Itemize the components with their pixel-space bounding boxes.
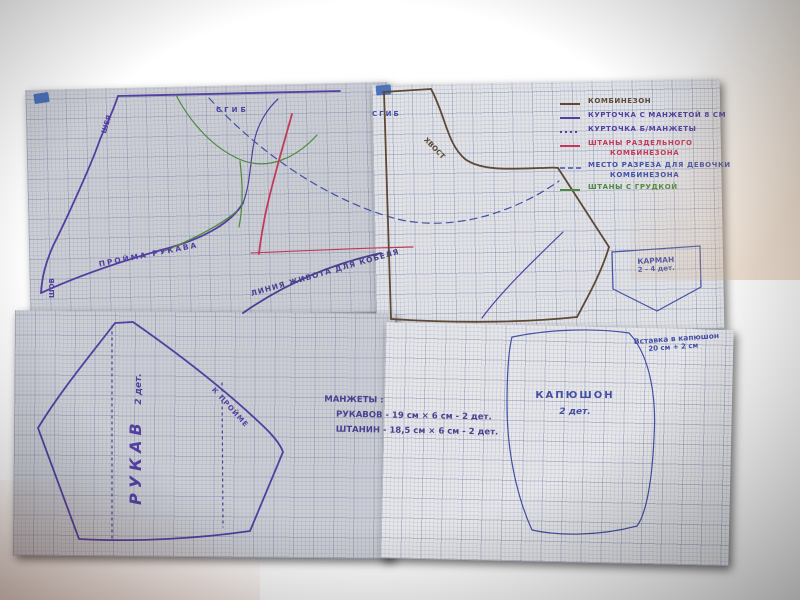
sleeve-quantity: 2 дет. — [134, 373, 144, 404]
legend-label: КУРТОЧКА Б/МАНЖЕТЫ — [588, 124, 697, 134]
legend-label: ШТАНЫ С ГРУДКОЙ — [588, 182, 678, 192]
blue-tape-piece — [376, 84, 392, 95]
legend-line-sample — [558, 110, 588, 122]
legend-item: МЕСТО РАЗРЕЗА ДЛЯ ДЕВОЧКИ КОМБИНЕЗОНА — [558, 160, 738, 180]
legend-label: КОМБИНЕЗОН — [588, 96, 651, 106]
legend-line-sample — [558, 124, 588, 136]
legend-label-line2: КОМБИНЕЗОНА — [610, 170, 731, 180]
legend-item: КУРТОЧКА С МАНЖЕТОЙ 8 СМ — [558, 110, 738, 122]
sleeve-title: РУКАВ — [126, 418, 145, 505]
legend-label: МЕСТО РАЗРЕЗА ДЛЯ ДЕВОЧКИ — [588, 160, 731, 170]
cuffs-pants-row: ШТАНИН - 18,5 см × 6 см - 2 дет. — [336, 423, 499, 441]
legend-item: ШТАНЫ С ГРУДКОЙ — [558, 182, 738, 194]
legend-line-sample — [558, 138, 588, 150]
hood-title: КАПЮШОН — [528, 390, 622, 401]
legend: КОМБИНЕЗОН КУРТОЧКА С МАНЖЕТОЙ 8 СМ КУРТ… — [558, 96, 738, 196]
fold-label-back: СГИБ — [372, 110, 401, 118]
hood-quantity: 2 дет. — [528, 407, 622, 417]
legend-line-sample — [558, 96, 588, 108]
sleeve-label: РУКАВ 2 дет. — [126, 355, 145, 505]
cuffs-title: МАНЖЕТЫ : — [324, 394, 383, 405]
legend-label-line2: КОМБИНЕЗОНА — [610, 148, 693, 158]
fold-label-body: СГИБ — [216, 106, 249, 114]
legend-item: КУРТОЧКА Б/МАНЖЕТЫ — [558, 124, 738, 136]
seam-label: ШОВ — [48, 278, 56, 298]
blue-tape-piece — [33, 92, 49, 104]
legend-label: ШТАНЫ РАЗДЕЛЬНОГО — [588, 138, 693, 148]
graph-paper-sheet-bottom-right — [380, 322, 733, 566]
legend-line-sample — [558, 160, 588, 172]
graph-paper-sheet-top-left — [25, 82, 392, 320]
legend-item: КОМБИНЕЗОН — [558, 96, 738, 108]
legend-item: ШТАНЫ РАЗДЕЛЬНОГО КОМБИНЕЗОНА — [558, 138, 738, 158]
legend-line-sample — [558, 182, 588, 194]
cuffs-note: МАНЖЕТЫ : РУКАВОВ - 19 см × 6 см - 2 дет… — [324, 392, 499, 440]
photo-of-sewing-patterns: СГИБ ШЕЯ ШОВ ПРОЙМА РУКАВА ЛИНИЯ ЖИВОТА … — [0, 0, 800, 600]
hood-label: КАПЮШОН 2 дет. — [528, 390, 622, 417]
legend-label: КУРТОЧКА С МАНЖЕТОЙ 8 СМ — [588, 110, 726, 120]
